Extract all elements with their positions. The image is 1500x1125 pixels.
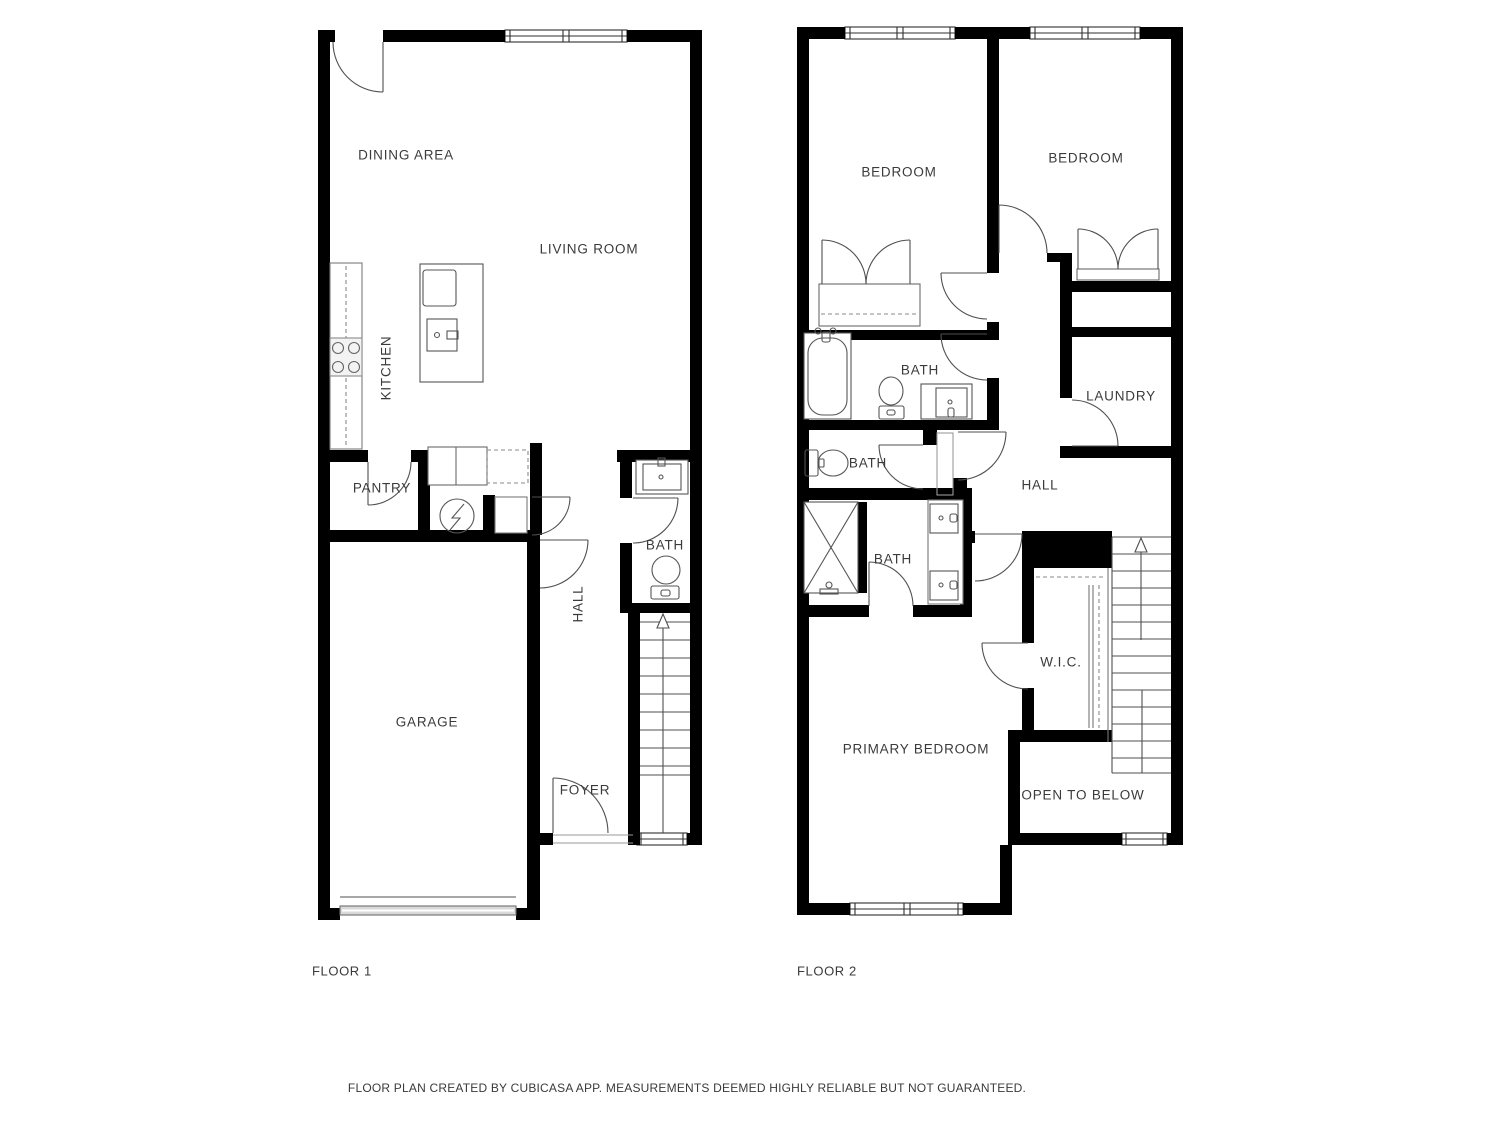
bathtub-icon (804, 333, 851, 419)
floor2-stairs-icon (1112, 537, 1171, 773)
floor2-plan (797, 27, 1183, 915)
floor1-bath-fixtures (636, 458, 688, 599)
water-heater-icon (440, 499, 474, 533)
room-label-laundry: LAUNDRY (1086, 389, 1156, 404)
refrigerator-icon (487, 450, 528, 483)
bedroom2-closet-icon (1077, 229, 1159, 280)
floor2-bath2-fixtures (805, 450, 848, 476)
room-label-primary-bedroom: PRIMARY BEDROOM (843, 742, 990, 757)
disclaimer-text: FLOOR PLAN CREATED BY CUBICASA APP. MEAS… (348, 1081, 1026, 1095)
room-label-bath-primary: BATH (874, 552, 912, 567)
room-label-garage: GARAGE (396, 715, 459, 730)
closet-box (495, 497, 527, 533)
bathroom-vanity-icon (921, 384, 972, 419)
entry-threshold (553, 835, 633, 843)
floor2-title: FLOOR 2 (797, 964, 857, 979)
floor-plan-drawing (0, 0, 1500, 1125)
toilet-icon (652, 556, 680, 584)
room-label-kitchen: KITCHEN (379, 336, 394, 401)
stairs-up-arrow-icon (657, 614, 669, 628)
floor1-plan (318, 30, 702, 920)
floor2-walls (797, 27, 1183, 915)
room-label-hall-floor1: HALL (571, 586, 586, 623)
floor-plan-page: DINING AREA LIVING ROOM KITCHEN PANTRY H… (0, 0, 1500, 1125)
toilet-icon (818, 450, 848, 476)
kitchen-island (420, 264, 483, 382)
room-label-bath-top: BATH (901, 363, 939, 378)
floor2-bath1-fixtures (804, 328, 972, 419)
room-label-wic: W.I.C. (1040, 655, 1082, 670)
hall-cabinets (428, 447, 528, 533)
room-label-pantry: PANTRY (353, 481, 411, 496)
bathroom-vanity-icon (636, 460, 688, 494)
stairs-up-arrow-icon (1135, 538, 1147, 552)
room-label-open-to-below: OPEN TO BELOW (1021, 788, 1144, 803)
toilet-icon (879, 377, 903, 405)
room-label-bath-half: BATH (849, 456, 887, 471)
bedroom1-closet-icon (819, 240, 920, 326)
kitchen-counter (330, 263, 362, 449)
room-label-bedroom-1: BEDROOM (861, 165, 936, 180)
floor1-title: FLOOR 1 (312, 964, 372, 979)
room-label-bath-floor1: BATH (646, 538, 684, 553)
room-label-dining-area: DINING AREA (358, 148, 454, 163)
room-label-hall-floor2: HALL (1022, 478, 1059, 493)
room-label-bedroom-2: BEDROOM (1048, 151, 1123, 166)
room-label-living-room: LIVING ROOM (540, 242, 639, 257)
room-label-foyer: FOYER (560, 783, 611, 798)
garage-door-icon (340, 897, 516, 915)
linen-closet (937, 433, 953, 495)
floor1-stairs-icon (640, 614, 690, 833)
